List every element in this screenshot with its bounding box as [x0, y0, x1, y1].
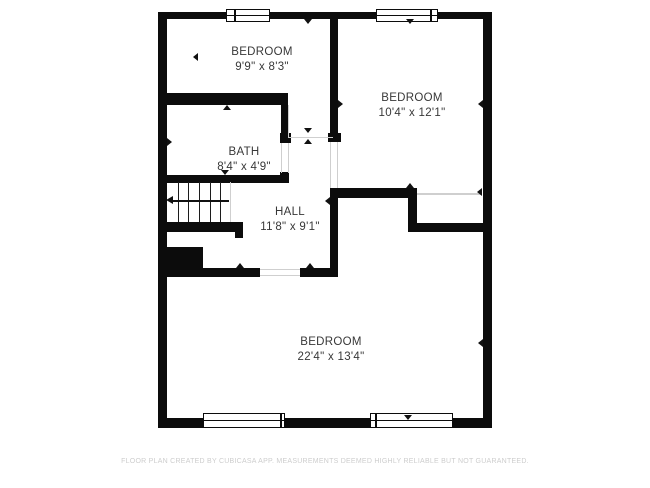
direction-marker-icon — [306, 263, 314, 268]
window-divider — [234, 10, 236, 21]
room-name: BEDROOM — [182, 45, 342, 60]
room-label-bedroom-2: BEDROOM 10'4" x 12'1" — [332, 91, 492, 121]
direction-marker-icon — [404, 415, 412, 420]
wall-segment — [158, 268, 260, 277]
direction-marker-icon — [338, 100, 343, 108]
wall-segment — [158, 12, 167, 428]
stair-tread — [199, 182, 200, 222]
wall-segment — [330, 188, 410, 198]
stair-direction-arrow — [173, 200, 229, 202]
room-label-bedroom-3: BEDROOM 22'4" x 13'4" — [251, 335, 411, 365]
stair-arrow-head-icon — [166, 196, 173, 204]
room-name: HALL — [210, 205, 370, 220]
stair-tread — [220, 182, 221, 222]
door-opening-line — [230, 182, 231, 222]
floor-plan: BEDROOM 9'9" x 8'3" BEDROOM 10'4" x 12'1… — [0, 0, 650, 488]
door-opening-line — [337, 142, 338, 188]
direction-marker-icon — [477, 188, 482, 196]
room-dimensions: 9'9" x 8'3" — [182, 60, 342, 75]
window-sash-line — [371, 420, 452, 421]
direction-marker-icon — [193, 53, 198, 61]
wall-segment — [280, 133, 291, 143]
direction-marker-icon — [304, 19, 312, 24]
door-opening-line — [288, 105, 289, 138]
window-divider — [430, 10, 432, 21]
wall-segment — [300, 268, 338, 277]
room-label-bath: BATH 8'4" x 4'9" — [164, 145, 324, 175]
door-opening-line — [288, 143, 289, 173]
floor-plan-screenshot: BEDROOM 9'9" x 8'3" BEDROOM 10'4" x 12'1… — [0, 0, 650, 488]
wall-segment — [158, 222, 243, 232]
direction-marker-icon — [167, 138, 172, 146]
door-opening-line — [417, 193, 482, 195]
door-opening-line — [281, 143, 282, 173]
wall-segment — [158, 12, 492, 19]
wall-segment — [483, 12, 492, 428]
window-symbol — [226, 9, 270, 22]
direction-marker-icon — [221, 170, 229, 175]
direction-marker-icon — [304, 128, 312, 133]
wall-segment — [235, 222, 243, 238]
wall-segment — [330, 19, 338, 133]
direction-marker-icon — [478, 339, 483, 347]
direction-marker-icon — [478, 100, 483, 108]
room-dimensions: 10'4" x 12'1" — [332, 106, 492, 121]
door-opening-line — [288, 137, 333, 138]
window-symbol — [203, 413, 285, 428]
wall-segment — [158, 247, 203, 268]
direction-marker-icon — [236, 263, 244, 268]
door-opening-line — [260, 269, 300, 270]
window-divider — [375, 414, 377, 427]
window-sash-line — [204, 420, 284, 421]
window-divider — [280, 414, 282, 427]
stair-tread — [210, 182, 211, 222]
room-name: BEDROOM — [251, 335, 411, 350]
door-opening-line — [330, 142, 331, 188]
direction-marker-icon — [304, 139, 312, 144]
wall-segment — [330, 188, 338, 277]
wall-segment — [408, 223, 492, 232]
stair-tread — [178, 182, 179, 222]
direction-marker-icon — [223, 105, 231, 110]
wall-segment — [158, 93, 288, 105]
direction-marker-icon — [406, 19, 414, 24]
footer-disclaimer: FLOOR PLAN CREATED BY CUBICASA APP. MEAS… — [0, 458, 650, 465]
wall-segment — [280, 172, 289, 183]
door-opening-line — [260, 275, 300, 276]
room-dimensions: 22'4" x 13'4" — [251, 350, 411, 365]
direction-marker-icon — [406, 183, 414, 188]
room-name: BATH — [164, 145, 324, 160]
direction-marker-icon — [325, 197, 330, 205]
room-label-bedroom-1: BEDROOM 9'9" x 8'3" — [182, 45, 342, 75]
room-name: BEDROOM — [332, 91, 492, 106]
stair-tread — [188, 182, 189, 222]
room-dimensions: 8'4" x 4'9" — [164, 160, 324, 175]
window-sash-line — [377, 15, 437, 16]
